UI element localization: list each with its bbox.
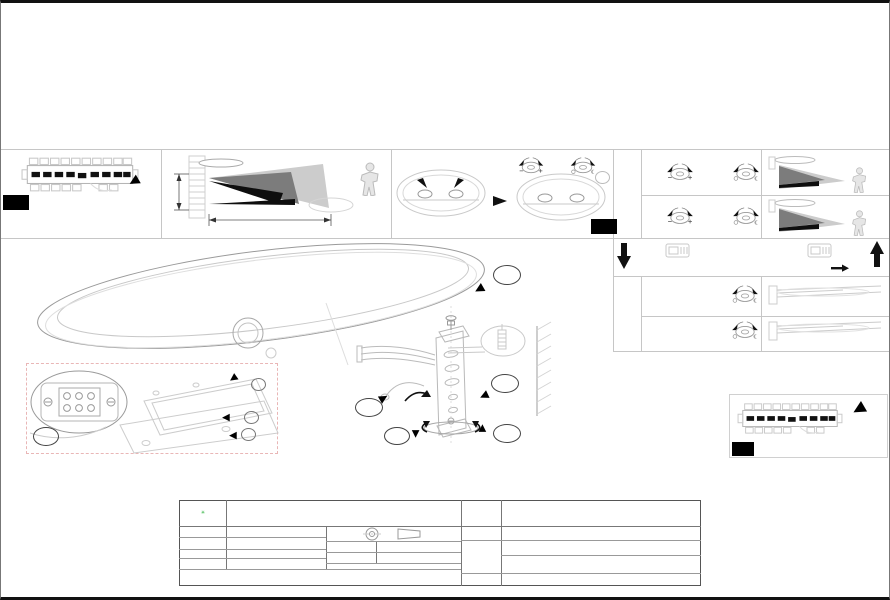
part-b-marker — [244, 411, 259, 424]
common-item-value — [501, 541, 701, 554]
date-label — [328, 553, 375, 563]
time-knob[interactable] — [664, 162, 696, 184]
m2-night-picture — [763, 316, 885, 348]
review-label — [179, 549, 226, 558]
divider-a-sensor — [161, 149, 162, 238]
logo-leaf-icon: ✳ — [201, 511, 205, 516]
switch-block-icon — [807, 243, 833, 259]
sensor-adjust-diagram — [393, 150, 611, 236]
name-label — [462, 503, 501, 523]
divider-mode-table-left — [613, 149, 614, 351]
m1-night-picture — [763, 196, 885, 236]
panel-c-label — [732, 442, 754, 456]
arrow-right-icon — [831, 264, 849, 272]
panel-a-label — [3, 195, 29, 210]
step-6-arrow-icon: ▶ — [478, 424, 488, 432]
draw-value — [231, 538, 321, 549]
version-label — [328, 542, 375, 552]
divider-sensor-b — [391, 149, 392, 238]
approve-label — [179, 559, 226, 569]
switch-block-icon — [665, 243, 691, 259]
item-number-value — [501, 526, 701, 540]
step-3-marker — [355, 398, 383, 417]
product-name — [501, 503, 701, 523]
instruction-sheet: ▶ — [0, 0, 890, 600]
projection-symbol — [356, 527, 426, 541]
part-c-arrow-icon: ▶ — [229, 430, 237, 440]
mode-table-line — [613, 276, 889, 277]
step-2-marker — [491, 374, 519, 393]
time-knob[interactable] — [664, 206, 696, 228]
check-label — [179, 527, 226, 537]
panel-b-label — [591, 219, 617, 234]
step-1-arrow-icon: ▶ — [410, 430, 420, 438]
arrow-up-icon — [870, 241, 884, 267]
note-b-marker — [595, 171, 610, 184]
table-line — [461, 573, 701, 574]
mode-table-line — [641, 276, 642, 351]
lux-knob[interactable] — [730, 162, 762, 184]
version-value — [378, 542, 460, 552]
date-value — [378, 553, 460, 563]
table-line — [179, 569, 461, 570]
mounting-assembly-drawing — [351, 298, 561, 450]
step-6-marker — [493, 424, 521, 443]
part-a-marker — [251, 378, 266, 391]
table-line — [326, 563, 461, 564]
lux-knob[interactable] — [729, 284, 761, 306]
company-logo: ✳ — [181, 502, 225, 524]
step-1-marker — [384, 427, 410, 445]
draw-label — [179, 538, 226, 549]
m1-day-picture — [763, 153, 885, 193]
mode-table-line — [761, 276, 762, 351]
terminal-strip-drawing — [737, 401, 843, 435]
lux-knob[interactable] — [730, 206, 762, 228]
wiring-detail-drawing — [26, 363, 278, 454]
mode-table-line — [613, 351, 889, 352]
part-c-marker — [241, 428, 256, 441]
divider-band-bottom — [1, 238, 889, 239]
part-b-arrow-icon: ▶ — [222, 412, 230, 422]
table-line — [501, 555, 701, 556]
company-name — [226, 502, 461, 525]
lux-knob[interactable] — [729, 320, 761, 342]
step-5-marker — [493, 265, 521, 285]
arrow-down-icon — [617, 243, 631, 269]
mode-table-line — [641, 149, 642, 238]
terminal-strip-drawing — [21, 155, 139, 193]
detail-4-marker — [33, 427, 59, 446]
m2-day-picture — [763, 280, 885, 312]
item-number-label — [462, 527, 501, 539]
sensor-range-diagram — [163, 150, 389, 236]
